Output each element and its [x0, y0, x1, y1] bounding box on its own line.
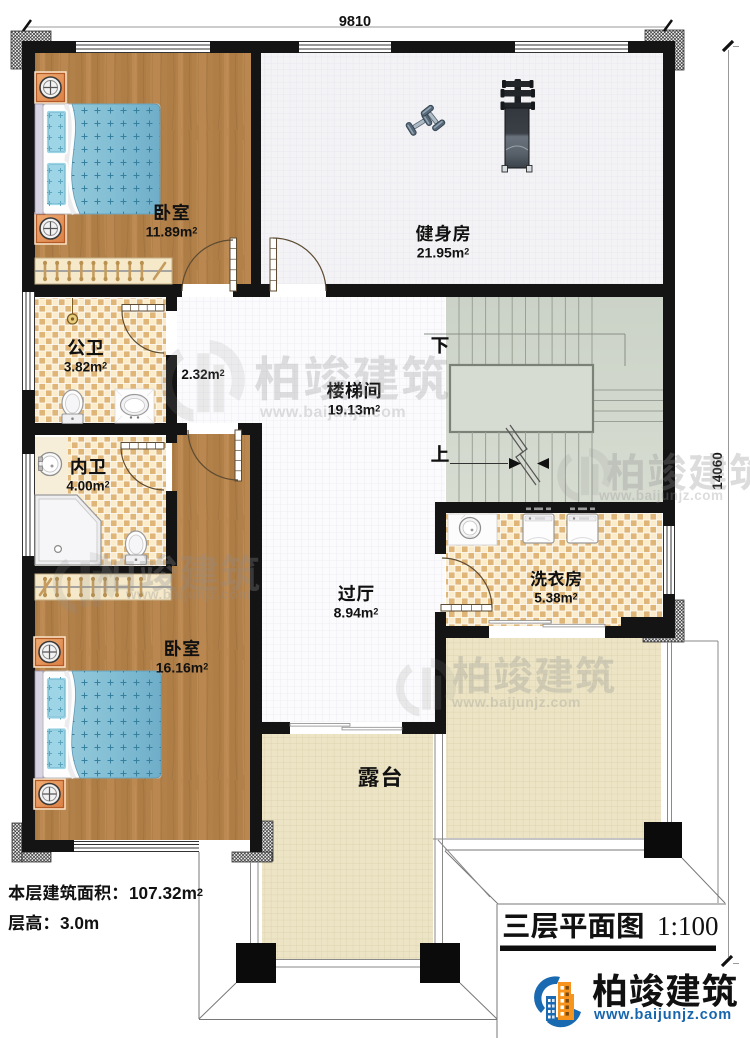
svg-text:www.baijunjz.com: www.baijunjz.com: [259, 404, 406, 421]
svg-text:www.baijunjz.com: www.baijunjz.com: [593, 1007, 732, 1023]
svg-text:11.89m2: 11.89m2: [146, 224, 198, 240]
svg-text:www.baijunjz.com: www.baijunjz.com: [125, 587, 251, 602]
svg-text:1:100: 1:100: [657, 911, 719, 941]
svg-text:www.baijunjz.com: www.baijunjz.com: [598, 488, 724, 503]
svg-text:21.95m2: 21.95m2: [417, 245, 470, 261]
svg-text:8.94m2: 8.94m2: [334, 605, 379, 621]
svg-text:4.00m2: 4.00m2: [66, 479, 109, 494]
svg-text:16.16m2: 16.16m2: [156, 660, 209, 676]
svg-text:5.38m2: 5.38m2: [534, 591, 577, 606]
svg-text:9810: 9810: [339, 14, 371, 30]
svg-text:3.0m: 3.0m: [60, 913, 99, 933]
svg-text:www.baijunjz.com: www.baijunjz.com: [451, 694, 581, 710]
svg-text:3.82m2: 3.82m2: [64, 360, 107, 375]
svg-text:107.32m2: 107.32m2: [129, 883, 203, 903]
